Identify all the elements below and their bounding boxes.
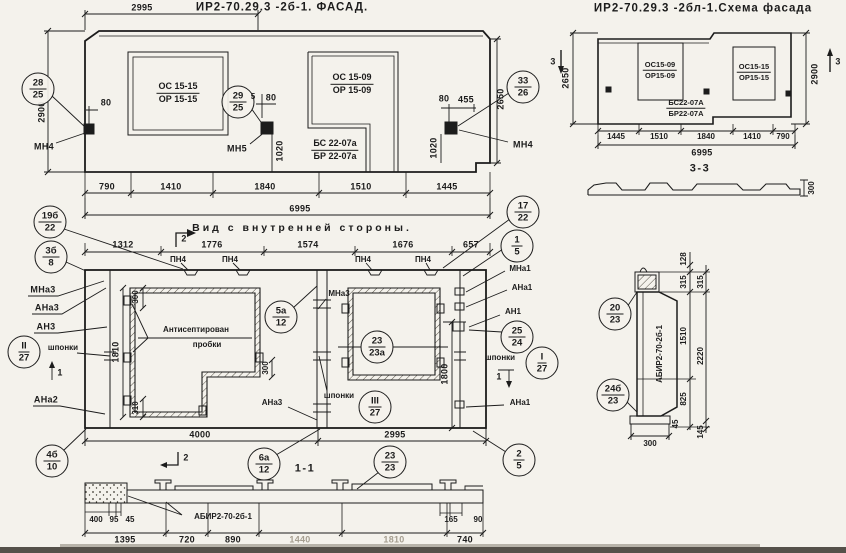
scheme-dim-2900: 2900 <box>811 63 820 84</box>
callout-bottom-number: 25 <box>230 103 247 114</box>
section-mark-3-left: 3 <box>550 58 555 67</box>
plugs-note-line2: пробки <box>193 341 221 349</box>
dim-165: 165 <box>444 516 457 524</box>
callout-bottom-number: 27 <box>367 408 384 419</box>
scheme-window-os15-09: ОС15-09 ОР15-09 <box>643 60 677 81</box>
callout-bottom-number: 25 <box>30 90 47 101</box>
callout-bottom-number: 5 <box>513 461 524 472</box>
callout-top-number: 3б <box>42 245 59 257</box>
callout-top-number: 33 <box>515 75 532 87</box>
callout-top-number: 20 <box>607 302 624 314</box>
dim-2995-inner: 2995 <box>384 431 405 440</box>
section-mark-2-top: 2 <box>181 235 186 244</box>
callout-bottom-number: 23 <box>382 463 399 474</box>
callout-6a-12: 6а 12 <box>248 448 281 481</box>
anchor-label-ana3-bottom: АНа3 <box>262 399 282 407</box>
dim-1510-side: 1510 <box>680 327 688 345</box>
dim-80-mid: 80 <box>266 94 277 103</box>
window-mark-os15-15: ОС 15-15 ОР 15-15 <box>156 81 199 105</box>
callout-33-26: 33 26 <box>507 71 540 104</box>
dim-1840: 1840 <box>254 183 275 192</box>
callout-top-number: 19б <box>39 210 61 222</box>
dim-1445: 1445 <box>436 183 457 192</box>
scheme-dim-1510: 1510 <box>650 133 668 141</box>
dim-890: 890 <box>225 536 241 545</box>
callout-5a-12: 5а 12 <box>265 301 298 334</box>
anchor-label-mna1: МНа1 <box>509 265 530 273</box>
section-3-3-label: 3-3 <box>690 164 710 175</box>
callout-bottom-number: 27 <box>16 353 33 364</box>
scheme-dim-6995: 6995 <box>691 149 712 158</box>
callout-top-number: 5а <box>273 305 290 317</box>
dim-128: 128 <box>680 252 688 265</box>
dim-310: 310 <box>132 401 140 414</box>
scheme-window-os15-15: ОС15-15 ОР15-15 <box>737 62 771 83</box>
callout-bottom-number: 8 <box>45 258 56 269</box>
dim-1020-left: 1020 <box>276 140 285 161</box>
callout-25-24: 25 24 <box>501 321 534 354</box>
dim-315-outer: 315 <box>697 275 705 288</box>
dim-1574: 1574 <box>297 241 318 250</box>
dim-1312: 1312 <box>112 241 133 250</box>
callout-top-number: 17 <box>515 200 532 212</box>
anchor-label-mn4-right: МН4 <box>513 141 533 150</box>
section-mark-3-right: 3 <box>835 58 840 67</box>
anchor-label-an3: АН3 <box>37 323 56 332</box>
callout-bottom-number: 23а <box>366 348 388 359</box>
callout-23-23a: 23 23а <box>361 331 394 364</box>
mark-pn4-1: ПН4 <box>170 256 186 264</box>
shponki-label-right: шпонки <box>485 354 515 362</box>
drawing-linework <box>0 0 846 553</box>
dim-1776: 1776 <box>201 241 222 250</box>
dim-400: 400 <box>89 516 102 524</box>
callout-1-5: 1 5 <box>501 230 534 263</box>
callout-top-number: II <box>18 340 29 352</box>
anchor-label-mn4-left: МН4 <box>34 143 54 152</box>
inner-view-drawing <box>28 219 514 468</box>
callout-bottom-number: 23 <box>605 396 622 407</box>
window-mark-os15-09: ОС 15-09 ОР 15-09 <box>330 72 373 96</box>
callout-3b-8: 3б 8 <box>35 241 68 274</box>
anchor-label-mna3-inner: МНа3 <box>328 290 349 298</box>
dim-1440-faint: 1440 <box>289 536 310 545</box>
dim-45: 45 <box>126 516 135 524</box>
callout-top-number: 6а <box>256 452 273 464</box>
callout-top-number: 23 <box>369 335 386 347</box>
anchor-label-ana1-top: АНа1 <box>512 284 532 292</box>
section-mark-2-bottom: 2 <box>183 454 188 463</box>
section-1-1-label: 1-1 <box>295 464 315 475</box>
dim-720: 720 <box>179 536 195 545</box>
callout-top-number: 28 <box>30 77 47 89</box>
callout-17-22: 17 22 <box>507 196 540 229</box>
blueprint-sheet: ИР2-70.29.3 -2б-1. ФАСАД. 2995 2900 28 2… <box>0 0 846 553</box>
anchor-label-an1: АН1 <box>505 308 521 316</box>
dim-300-side: 300 <box>643 440 656 448</box>
callout-top-number: 4б <box>43 449 60 461</box>
dim-455: 455 <box>458 96 474 105</box>
callout-bottom-number: 5 <box>511 247 522 258</box>
callout-top-number: 25 <box>509 325 526 337</box>
inner-view-title: Вид с внутренней стороны. <box>192 223 412 234</box>
callout-bottom-number: 24 <box>509 338 526 349</box>
callout-24b-23: 24б 23 <box>597 379 630 412</box>
scheme-dim-1410: 1410 <box>743 133 761 141</box>
dim-80-left: 80 <box>101 99 112 108</box>
dim-300-top: 300 <box>132 290 140 303</box>
facade-title: ИР2-70.29.3 -2б-1. ФАСАД. <box>196 2 368 14</box>
shponki-label-left: шпонки <box>48 344 78 352</box>
dim-45-side: 45 <box>672 420 680 429</box>
dim-825: 825 <box>680 392 688 405</box>
callout-top-number: 2 <box>513 448 524 460</box>
dim-1020-right: 1020 <box>430 137 439 158</box>
block-mark-bs22-07a: БС 22-07а БР 22-07а <box>311 138 358 162</box>
dim-2650: 2650 <box>497 88 506 109</box>
callout-top-number: I <box>538 351 547 363</box>
anchor-label-mna3-left: МНа3 <box>30 286 55 295</box>
scheme-dim-2650: 2650 <box>562 67 571 88</box>
callout-4b-10: 4б 10 <box>36 445 69 478</box>
mark-pn4-2: ПН4 <box>222 256 238 264</box>
plugs-note-line1: Антисептирован <box>163 326 229 334</box>
dim-1676: 1676 <box>392 241 413 250</box>
dim-1395: 1395 <box>114 536 135 545</box>
dim-4000: 4000 <box>189 431 210 440</box>
dim-1800: 1800 <box>441 363 450 384</box>
scheme-dim-1840: 1840 <box>697 133 715 141</box>
dim-6995-total: 6995 <box>289 205 310 214</box>
part-mark-abir2-vertical: АБИР2-70-2б-1 <box>656 325 664 383</box>
anchor-label-ana2: АНа2 <box>34 396 58 405</box>
callout-bottom-number: 22 <box>515 213 532 224</box>
mark-pn4-4: ПН4 <box>415 256 431 264</box>
callout-II-27: II 27 <box>8 336 41 369</box>
section-mark-1-right: 1 <box>496 373 501 382</box>
dim-5: 5 <box>251 93 255 101</box>
callout-29-25: 29 25 <box>222 86 255 119</box>
callout-top-number: III <box>368 395 382 407</box>
part-mark-abir2: АБИР2-70-2б-1 <box>194 513 252 521</box>
callout-19b-22: 19б 22 <box>34 206 67 239</box>
callout-I-27: I 27 <box>526 347 559 380</box>
shponki-label-mid: шпонки <box>324 392 354 400</box>
scheme-title: ИР2-70.29.3 -2бл-1.Схема фасада <box>594 3 812 15</box>
dim-80-right: 80 <box>439 95 450 104</box>
dim-145: 145 <box>697 425 705 438</box>
callout-bottom-number: 26 <box>515 88 532 99</box>
callout-top-number: 24б <box>602 383 624 395</box>
callout-bottom-number: 22 <box>42 223 59 234</box>
callout-28-25: 28 25 <box>22 73 55 106</box>
callout-2-5: 2 5 <box>503 444 536 477</box>
callout-bottom-number: 12 <box>256 465 273 476</box>
dim-1410: 1410 <box>160 183 181 192</box>
callout-bottom-number: 12 <box>273 318 290 329</box>
scheme-dim-300: 300 <box>808 181 816 194</box>
callout-23-23: 23 23 <box>374 446 407 479</box>
callout-III-27: III 27 <box>359 391 392 424</box>
dim-1810: 1810 <box>112 341 121 362</box>
dim-790: 790 <box>99 183 115 192</box>
callout-bottom-number: 23 <box>607 315 624 326</box>
scan-edge-artifact <box>0 547 846 553</box>
section-mark-1-left: 1 <box>57 369 62 378</box>
anchor-label-ana1-bottom: АНа1 <box>510 399 530 407</box>
callout-top-number: 23 <box>382 450 399 462</box>
callout-top-number: 1 <box>511 234 522 246</box>
dim-1810-faint: 1810 <box>383 536 404 545</box>
dim-300-right: 300 <box>262 361 270 374</box>
dim-2220: 2220 <box>697 347 705 365</box>
scheme-dim-790: 790 <box>776 133 789 141</box>
dim-95: 95 <box>110 516 119 524</box>
callout-20-23: 20 23 <box>599 298 632 331</box>
scheme-block-bs22-07a: БС22-07А БР22-07А <box>666 98 705 119</box>
scheme-dim-1445: 1445 <box>607 133 625 141</box>
dim-740: 740 <box>457 536 473 545</box>
dim-2995: 2995 <box>131 4 152 13</box>
dim-315-inner: 315 <box>680 275 688 288</box>
dim-90: 90 <box>474 516 483 524</box>
section-1-1-drawing <box>82 472 486 537</box>
callout-bottom-number: 10 <box>44 462 61 473</box>
dim-657: 657 <box>463 241 479 250</box>
dim-1510: 1510 <box>350 183 371 192</box>
anchor-label-ana3-left: АНа3 <box>35 304 59 313</box>
callout-bottom-number: 27 <box>534 364 551 375</box>
anchor-label-mn5: МН5 <box>227 145 247 154</box>
mark-pn4-3: ПН4 <box>355 256 371 264</box>
callout-top-number: 29 <box>230 90 247 102</box>
